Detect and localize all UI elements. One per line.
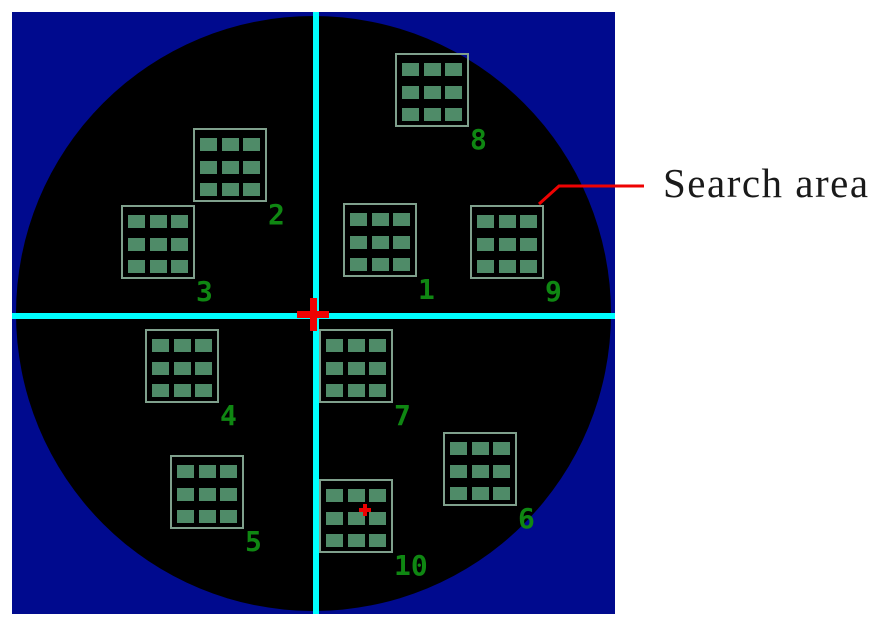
grid-cell xyxy=(222,161,239,174)
grid-cell xyxy=(150,238,167,251)
grid-cell xyxy=(195,362,212,375)
grid-cell xyxy=(450,487,467,500)
grid-cell xyxy=(369,339,386,352)
grid-cell xyxy=(424,63,441,76)
grid-cell xyxy=(493,487,510,500)
grid-cell xyxy=(493,442,510,455)
grid-cell xyxy=(477,215,494,228)
grid-cell xyxy=(372,236,389,249)
search-area-number: 10 xyxy=(394,552,428,580)
grid-cell xyxy=(171,260,188,273)
grid-cell xyxy=(520,260,537,273)
grid-cell xyxy=(220,510,237,523)
grid-cell xyxy=(445,86,462,99)
point-marker-vertical xyxy=(363,504,367,516)
grid-cell xyxy=(348,489,365,502)
grid-cell xyxy=(350,236,367,249)
search-area-number: 6 xyxy=(518,505,535,533)
grid-cell xyxy=(222,183,239,196)
search-area-number: 3 xyxy=(196,278,213,306)
grid-cell xyxy=(402,108,419,121)
grid-cell xyxy=(171,238,188,251)
grid-cell xyxy=(199,510,216,523)
grid-cell xyxy=(220,488,237,501)
grid-cell xyxy=(243,138,260,151)
grid-cell xyxy=(472,465,489,478)
grid-cell xyxy=(150,260,167,273)
search-area-number: 7 xyxy=(394,402,411,430)
grid-cell xyxy=(199,488,216,501)
grid-cell xyxy=(424,108,441,121)
search-area-grid[interactable]: 3 xyxy=(121,205,195,279)
grid-cell xyxy=(450,465,467,478)
search-area-grid[interactable]: 8 xyxy=(395,53,469,127)
search-area-grid[interactable]: 4 xyxy=(145,329,219,403)
grid-cell xyxy=(195,339,212,352)
search-area-grid[interactable]: 7 xyxy=(319,329,393,403)
grid-cell xyxy=(174,362,191,375)
search-area-grid[interactable]: 10 xyxy=(319,479,393,553)
grid-cell xyxy=(369,512,386,525)
search-area-number: 1 xyxy=(418,276,435,304)
search-area-number: 9 xyxy=(545,278,562,306)
grid-cell xyxy=(477,260,494,273)
grid-cell xyxy=(177,465,194,478)
grid-cell xyxy=(195,384,212,397)
grid-cell xyxy=(499,215,516,228)
grid-cell xyxy=(402,86,419,99)
search-area-number: 2 xyxy=(268,201,285,229)
grid-cell xyxy=(152,362,169,375)
search-area-number: 4 xyxy=(220,402,237,430)
grid-cell xyxy=(369,384,386,397)
grid-cell xyxy=(402,63,419,76)
grid-cell xyxy=(152,339,169,352)
grid-cell xyxy=(445,63,462,76)
search-area-grid[interactable]: 6 xyxy=(443,432,517,506)
grid-cell xyxy=(128,260,145,273)
search-area-number: 8 xyxy=(470,126,487,154)
grid-cell xyxy=(220,465,237,478)
grid-cell xyxy=(326,512,343,525)
grid-cell xyxy=(393,258,410,271)
grid-cell xyxy=(199,465,216,478)
grid-cell xyxy=(326,534,343,547)
grid-cell xyxy=(472,442,489,455)
search-area-number: 5 xyxy=(245,528,262,556)
grid-cell xyxy=(171,215,188,228)
grid-cell xyxy=(499,238,516,251)
grid-cell xyxy=(200,161,217,174)
grid-cell xyxy=(372,258,389,271)
grid-cell xyxy=(493,465,510,478)
grid-cell xyxy=(326,384,343,397)
search-area-grid[interactable]: 2 xyxy=(193,128,267,202)
grid-cell xyxy=(348,384,365,397)
grid-cell xyxy=(477,238,494,251)
grid-cell xyxy=(326,339,343,352)
grid-cell xyxy=(348,339,365,352)
grid-cell xyxy=(350,213,367,226)
grid-cell xyxy=(445,108,462,121)
grid-cell xyxy=(348,534,365,547)
grid-cell xyxy=(350,258,367,271)
search-area-grid[interactable]: 1 xyxy=(343,203,417,277)
grid-cell xyxy=(369,489,386,502)
grid-cell xyxy=(174,339,191,352)
grid-cell xyxy=(499,260,516,273)
wafer-map-figure: 1 2 3 4 xyxy=(0,0,885,634)
grid-cell xyxy=(348,362,365,375)
search-area-grid[interactable]: 9 xyxy=(470,205,544,279)
grid-cell xyxy=(393,236,410,249)
center-cross-marker-vertical xyxy=(310,298,317,331)
grid-cell xyxy=(128,238,145,251)
grid-cell xyxy=(177,488,194,501)
grid-cell xyxy=(150,215,167,228)
grid-cell xyxy=(520,215,537,228)
grid-cell xyxy=(243,161,260,174)
grid-cell xyxy=(393,213,410,226)
grid-cell xyxy=(177,510,194,523)
grid-cell xyxy=(200,138,217,151)
grid-cell xyxy=(200,183,217,196)
grid-cell xyxy=(174,384,191,397)
grid-cell xyxy=(222,138,239,151)
grid-cell xyxy=(372,213,389,226)
grid-cell xyxy=(472,487,489,500)
grid-cell xyxy=(348,512,365,525)
search-area-grid[interactable]: 5 xyxy=(170,455,244,529)
grid-cell xyxy=(152,384,169,397)
annotation-label: Search area xyxy=(663,163,870,204)
grid-cell xyxy=(369,534,386,547)
grid-cell xyxy=(326,362,343,375)
grid-cell xyxy=(128,215,145,228)
grid-cell xyxy=(520,238,537,251)
grid-cell xyxy=(243,183,260,196)
grid-cell xyxy=(326,489,343,502)
grid-cell xyxy=(369,362,386,375)
grid-cell xyxy=(450,442,467,455)
grid-cell xyxy=(424,86,441,99)
